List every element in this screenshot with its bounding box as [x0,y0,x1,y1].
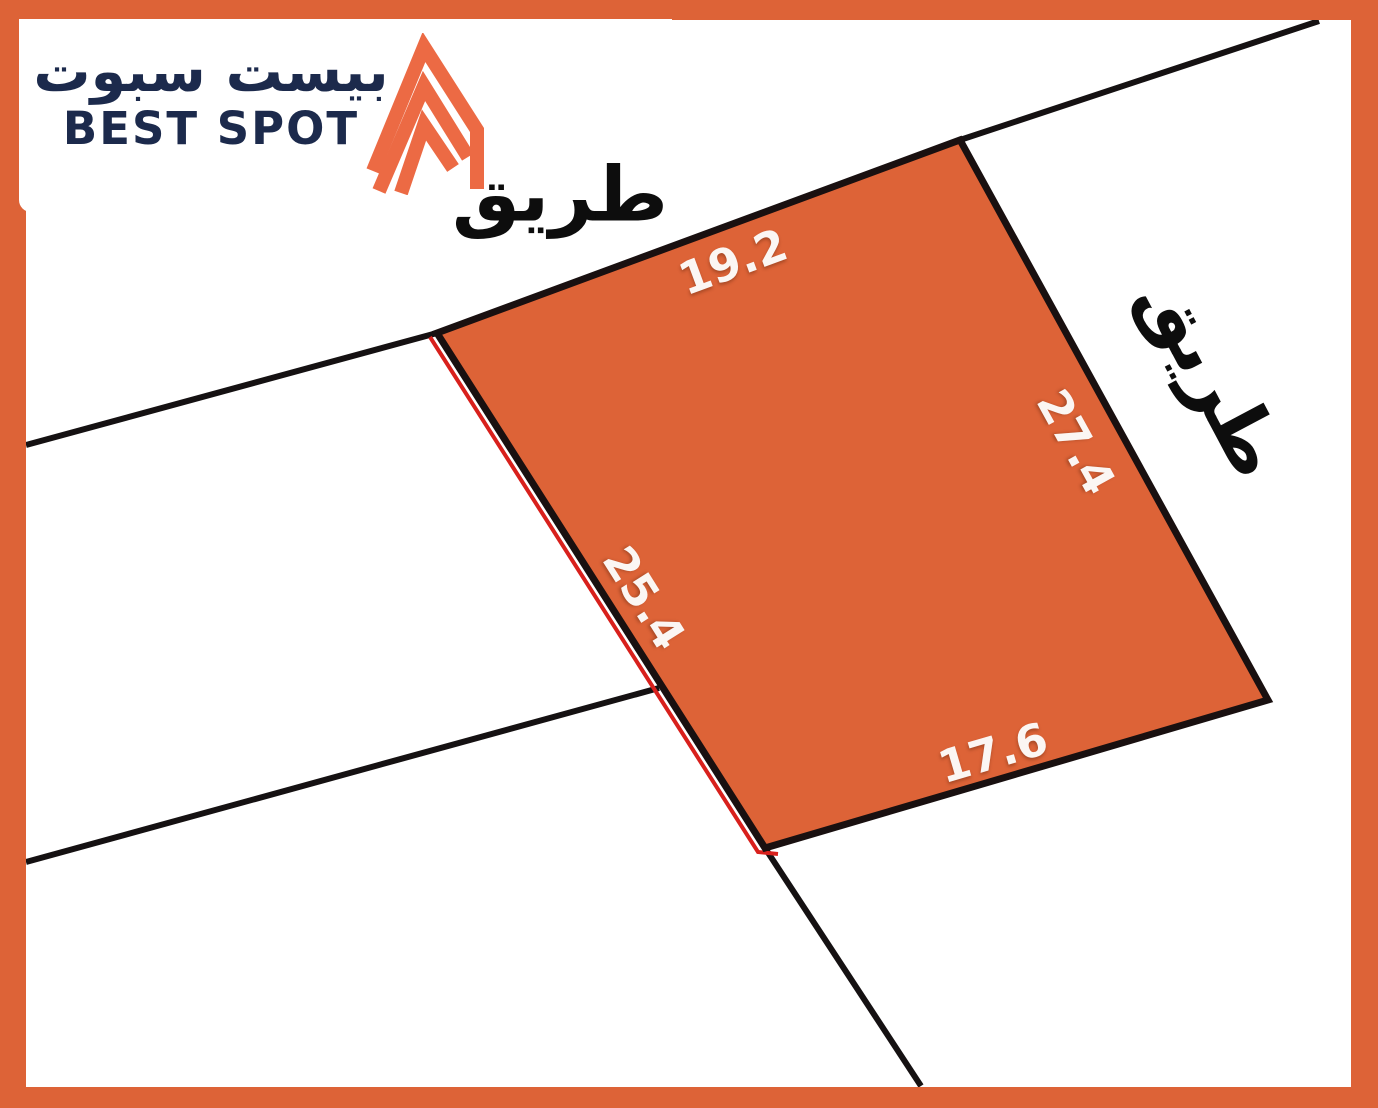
parcel-polygon [437,140,1268,848]
frame-border-bottom [0,1087,1378,1108]
neighbor-line-bottom [765,848,921,1086]
frame-border-right [1351,0,1378,1108]
plot-map-canvas: بيست سبوت BEST SPOT طريق طريق 19.2 27.4 … [0,0,1378,1108]
neighbor-line-left [26,688,659,862]
logo-latin-name: BEST SPOT [63,104,359,154]
frame-border-top [0,0,1378,20]
logo-text-block: بيست سبوت BEST SPOT [61,41,361,153]
road-label-top: طريق [452,150,668,239]
logo-arabic-name: بيست سبوت [33,41,388,104]
